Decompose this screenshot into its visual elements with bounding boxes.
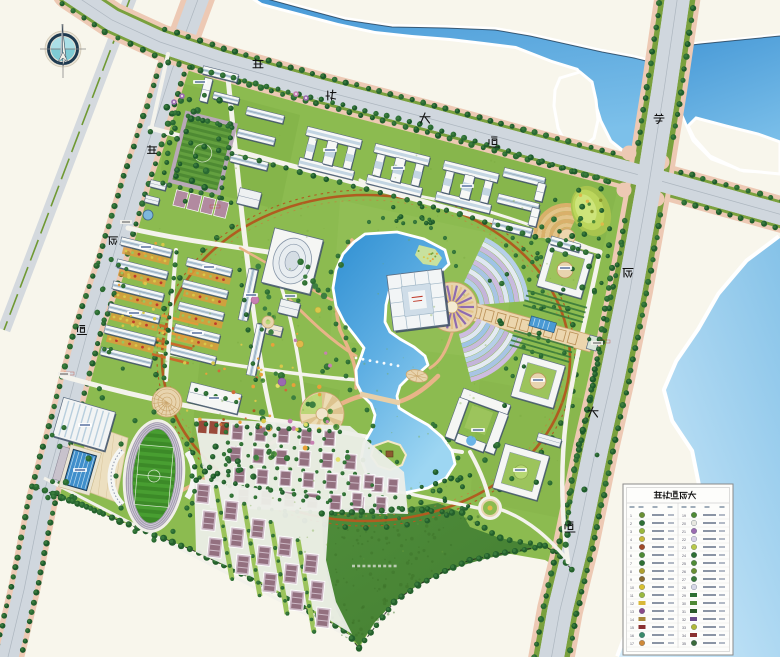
svg-text:5: 5 <box>630 546 632 550</box>
svg-text:6: 6 <box>630 554 632 558</box>
svg-text:30: 30 <box>682 602 686 606</box>
svg-text:20: 20 <box>682 522 686 526</box>
svg-text:16: 16 <box>630 634 634 638</box>
svg-text:10: 10 <box>630 586 634 590</box>
svg-text:3: 3 <box>630 530 632 534</box>
svg-text:28: 28 <box>682 586 686 590</box>
svg-text:27: 27 <box>682 578 686 582</box>
svg-text:12: 12 <box>630 602 634 606</box>
svg-text:17: 17 <box>630 642 634 646</box>
svg-text:29: 29 <box>682 594 686 598</box>
svg-text:4: 4 <box>630 538 632 542</box>
svg-text:14: 14 <box>630 618 634 622</box>
svg-text:11: 11 <box>630 594 634 598</box>
svg-text:15: 15 <box>630 626 634 630</box>
svg-text:32: 32 <box>682 618 686 622</box>
svg-text:8: 8 <box>630 570 632 574</box>
svg-text:7: 7 <box>630 562 632 566</box>
svg-text:19: 19 <box>682 514 686 518</box>
svg-text:2: 2 <box>630 522 632 526</box>
svg-text:21: 21 <box>682 530 686 534</box>
svg-text:24: 24 <box>682 554 686 558</box>
svg-text:22: 22 <box>682 538 686 542</box>
svg-text:9: 9 <box>630 578 632 582</box>
svg-text:13: 13 <box>630 610 634 614</box>
svg-text:35: 35 <box>682 642 686 646</box>
svg-text:1: 1 <box>630 514 632 518</box>
svg-text:26: 26 <box>682 570 686 574</box>
svg-text:25: 25 <box>682 562 686 566</box>
svg-text:33: 33 <box>682 626 686 630</box>
svg-text:23: 23 <box>682 546 686 550</box>
svg-text:31: 31 <box>682 610 686 614</box>
svg-text:34: 34 <box>682 634 686 638</box>
